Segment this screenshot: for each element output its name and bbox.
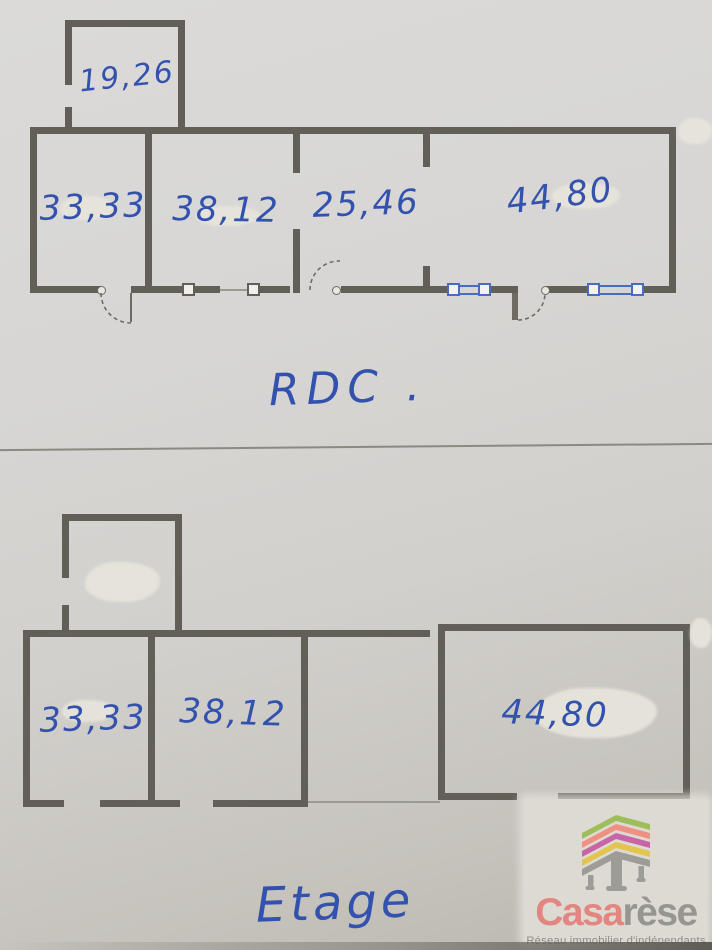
wall [131, 286, 220, 293]
wall [301, 630, 308, 807]
wall [100, 800, 180, 807]
room-area-label: 19,26 [77, 55, 176, 100]
whiteout-patch [85, 562, 160, 602]
brand-name-secondary: rèse [622, 891, 696, 934]
room-area-label: 33,33 [39, 185, 148, 229]
section-divider [0, 443, 712, 451]
whiteout-patch [678, 118, 712, 144]
wall [438, 624, 445, 800]
window-end [631, 283, 644, 296]
guide-line [308, 801, 440, 803]
wall [65, 20, 185, 27]
wall [545, 286, 587, 293]
door-swing-arc-icon [517, 292, 547, 322]
wall [683, 624, 690, 800]
room-area-label: 44,80 [501, 692, 610, 736]
wall [293, 127, 300, 173]
room-area-label: 38,12 [172, 189, 280, 231]
wall [62, 514, 182, 521]
wall [62, 514, 69, 578]
whiteout-patch [690, 618, 712, 648]
door-swing-arc-icon [100, 292, 133, 325]
logo-icon [576, 803, 656, 895]
wall [65, 107, 72, 128]
wall [62, 605, 69, 632]
brand-logo: Casarèse Réseau immobilier d'indépendant… [524, 799, 708, 943]
wall [175, 514, 182, 632]
door-jamb [247, 283, 260, 296]
room-area-label: 25,46 [312, 182, 421, 226]
wall [65, 20, 72, 85]
floor-label-rdc: RDC . [268, 360, 428, 416]
wall [148, 630, 155, 807]
window-rails [458, 285, 480, 295]
window-end [478, 283, 491, 296]
window-symbol [447, 283, 491, 296]
room-area-label: 33,33 [39, 697, 148, 741]
room-area-label: 38,12 [179, 691, 288, 735]
wall [30, 127, 676, 134]
wall [30, 286, 101, 293]
brand-name-primary: Casa [535, 891, 622, 934]
wall [491, 286, 518, 293]
wall [213, 800, 308, 807]
photographed-floorplan-page: 19,26 33,33 38,12 25,46 44,80 RDC . [0, 0, 712, 950]
wall [23, 800, 64, 807]
window-symbol [587, 283, 644, 296]
wall [178, 20, 185, 128]
wall [341, 286, 447, 293]
wall [293, 229, 300, 293]
photo-edge-shadow [0, 942, 712, 950]
wall [644, 286, 676, 293]
door-jamb [182, 283, 195, 296]
brand-name: Casarèse [524, 893, 708, 932]
wall [23, 630, 30, 807]
opening-line [220, 289, 247, 291]
wall [438, 793, 517, 800]
floor-label-etage: Etage [255, 872, 415, 933]
room-area-label: 44,80 [504, 170, 615, 223]
wall [423, 127, 430, 167]
wall [23, 630, 430, 637]
window-rails [598, 285, 633, 295]
door-swing-arc-icon [306, 257, 342, 292]
wall [669, 127, 676, 293]
wall [30, 127, 37, 293]
wall [438, 624, 690, 631]
